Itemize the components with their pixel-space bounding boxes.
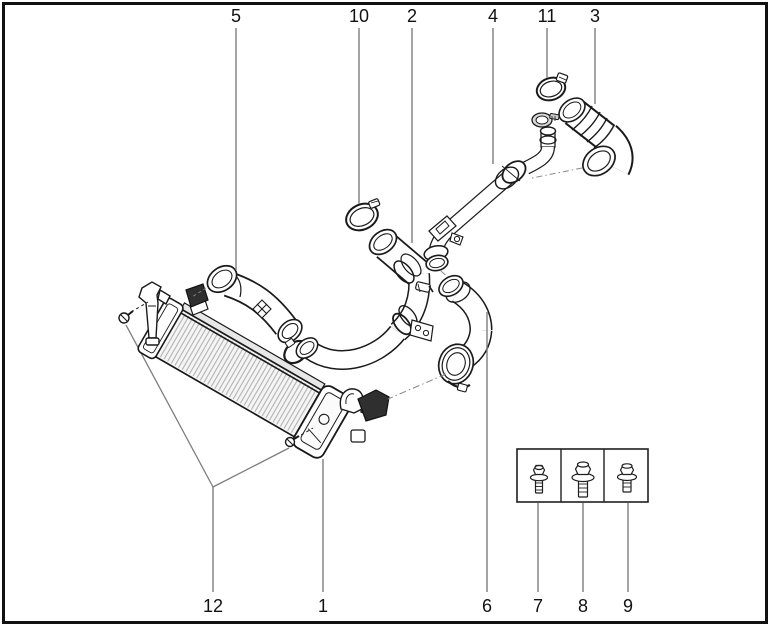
callout-number-3: 3 xyxy=(590,6,600,26)
callout-number-8: 8 xyxy=(578,596,588,616)
callout-number-7: 7 xyxy=(533,596,543,616)
callout-number-6: 6 xyxy=(482,596,492,616)
diagram-svg: 510241131216789 xyxy=(0,0,770,626)
figure-border xyxy=(4,4,767,623)
callout-number-12: 12 xyxy=(203,596,223,616)
intercooler-foot-tab xyxy=(351,430,365,442)
fastener-legend xyxy=(517,449,648,502)
callout-number-5: 5 xyxy=(231,6,241,26)
callout-number-4: 4 xyxy=(488,6,498,26)
parts-diagram-figure: 510241131216789 xyxy=(0,0,770,626)
callout-number-9: 9 xyxy=(623,596,633,616)
callout-number-1: 1 xyxy=(318,596,328,616)
callout-number-11: 11 xyxy=(538,6,557,26)
callout-number-10: 10 xyxy=(349,6,369,26)
callout-number-2: 2 xyxy=(407,6,417,26)
